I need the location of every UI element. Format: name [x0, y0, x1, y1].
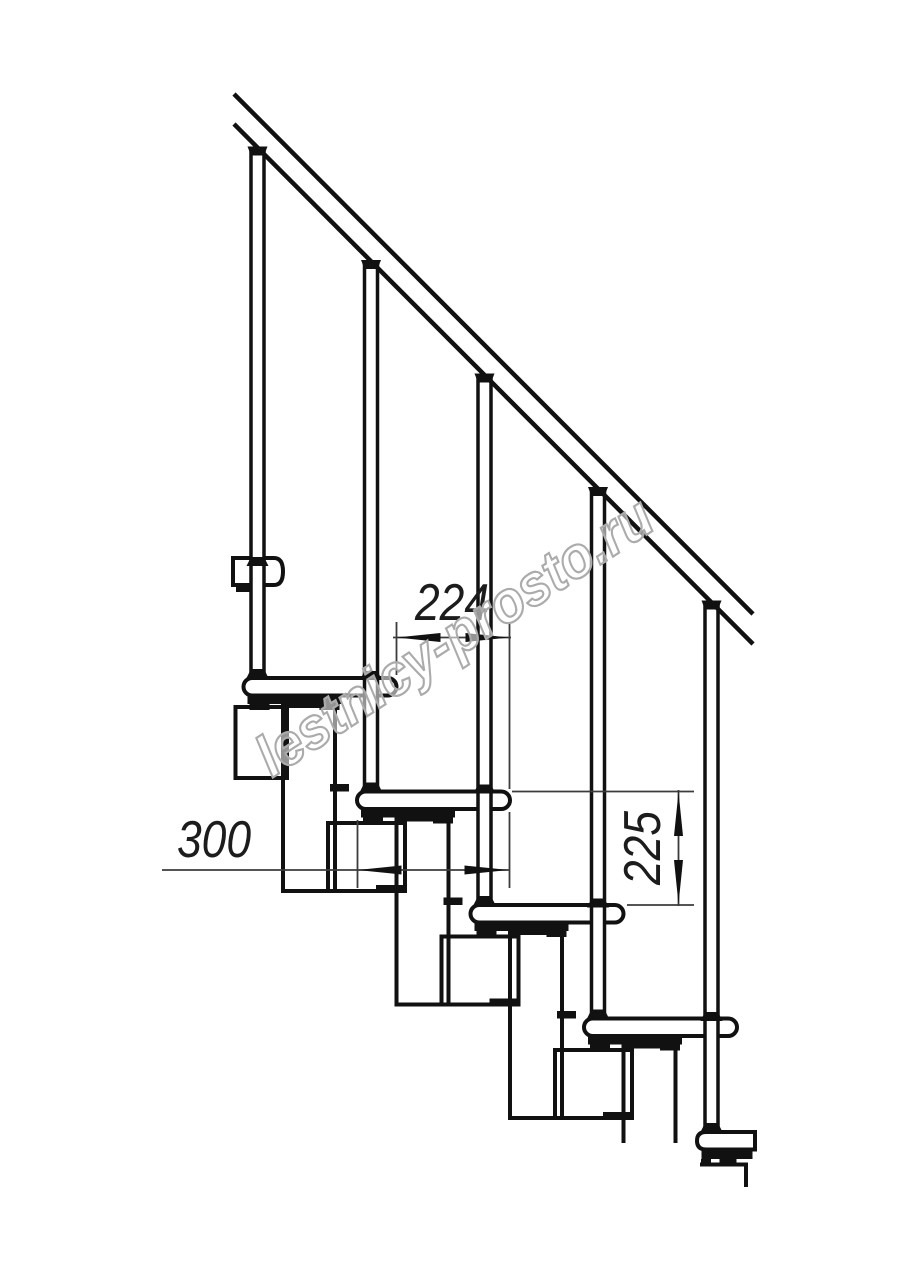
band-tab — [590, 1045, 610, 1051]
tread-band — [361, 810, 455, 818]
band-tab — [477, 931, 497, 937]
baluster — [247, 147, 269, 679]
module-box — [700, 1165, 746, 1188]
tread-band — [702, 1150, 753, 1159]
tread-band — [588, 1037, 682, 1045]
arrow-up-icon — [674, 792, 683, 836]
module-box — [328, 823, 405, 891]
baluster — [701, 601, 723, 1133]
band-tab — [363, 818, 383, 824]
band-tab — [660, 1045, 680, 1051]
handrail-bottom-edge — [234, 124, 753, 644]
band-tab — [701, 1159, 711, 1165]
handrail-top-edge — [234, 94, 753, 614]
band-tab — [547, 931, 567, 937]
tread — [697, 1132, 755, 1150]
band-tab — [433, 818, 453, 824]
module-connector — [330, 784, 349, 792]
arrow-down-icon — [674, 860, 683, 904]
dimension-label-depth: 300 — [177, 811, 251, 869]
box-bottom-plate — [603, 1112, 632, 1118]
band-tab — [250, 704, 270, 710]
box-bottom-plate — [376, 885, 405, 891]
band-tab — [720, 1159, 737, 1165]
staircase-drawing: 224 300 225 lestnicy-prosto.ru — [0, 0, 914, 1280]
dimension-label-rise: 225 — [614, 810, 672, 886]
tread-band — [475, 923, 569, 931]
box-bottom-plate — [490, 999, 519, 1005]
module-connector — [557, 1011, 576, 1019]
module-box — [555, 1050, 632, 1118]
arrow-left-icon — [358, 866, 402, 875]
module-connector — [444, 898, 463, 906]
handrail — [234, 94, 753, 644]
module-box — [442, 937, 519, 1005]
